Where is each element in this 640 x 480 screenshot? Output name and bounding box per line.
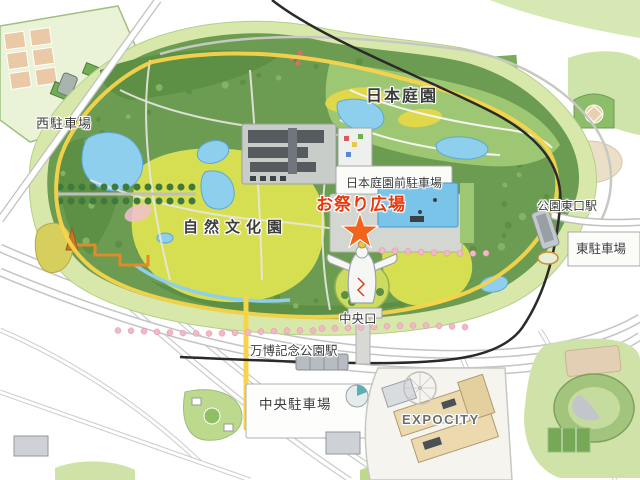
label-omatsuri-hiroba: お祭り広場 xyxy=(316,196,406,215)
label-banpaku-station: 万博記念公園駅 xyxy=(250,345,338,359)
label-central-parking: 中央駐車場 xyxy=(259,398,332,413)
green-strip xyxy=(460,183,474,243)
label-east-parking: 東駐車場 xyxy=(576,243,626,257)
label-expocity: EXPOCITY xyxy=(402,413,480,427)
ferris-wheel-icon xyxy=(404,372,436,404)
green-corner xyxy=(55,461,135,480)
label-west-parking: 西駐車場 xyxy=(36,117,92,131)
museum-complex xyxy=(242,124,336,184)
football-field xyxy=(548,428,590,452)
pavilion-garden xyxy=(338,128,372,166)
label-garden-front-parking: 日本庭園前駐車場 xyxy=(346,177,442,190)
stadium xyxy=(524,339,640,478)
baseball-diamond xyxy=(574,94,614,128)
park-map: 西駐車場 日本庭園 日本庭園前駐車場 お祭り広場 自然文化園 公園東口駅 東駐車… xyxy=(0,0,640,480)
label-japanese-garden: 日本庭園 xyxy=(366,88,438,106)
mini-track xyxy=(538,252,558,264)
label-shizen-bunkaen: 自然文化園 xyxy=(183,220,288,237)
label-park-east-station: 公園東口駅 xyxy=(537,200,597,213)
label-central-gate: 中央口 xyxy=(339,313,377,327)
